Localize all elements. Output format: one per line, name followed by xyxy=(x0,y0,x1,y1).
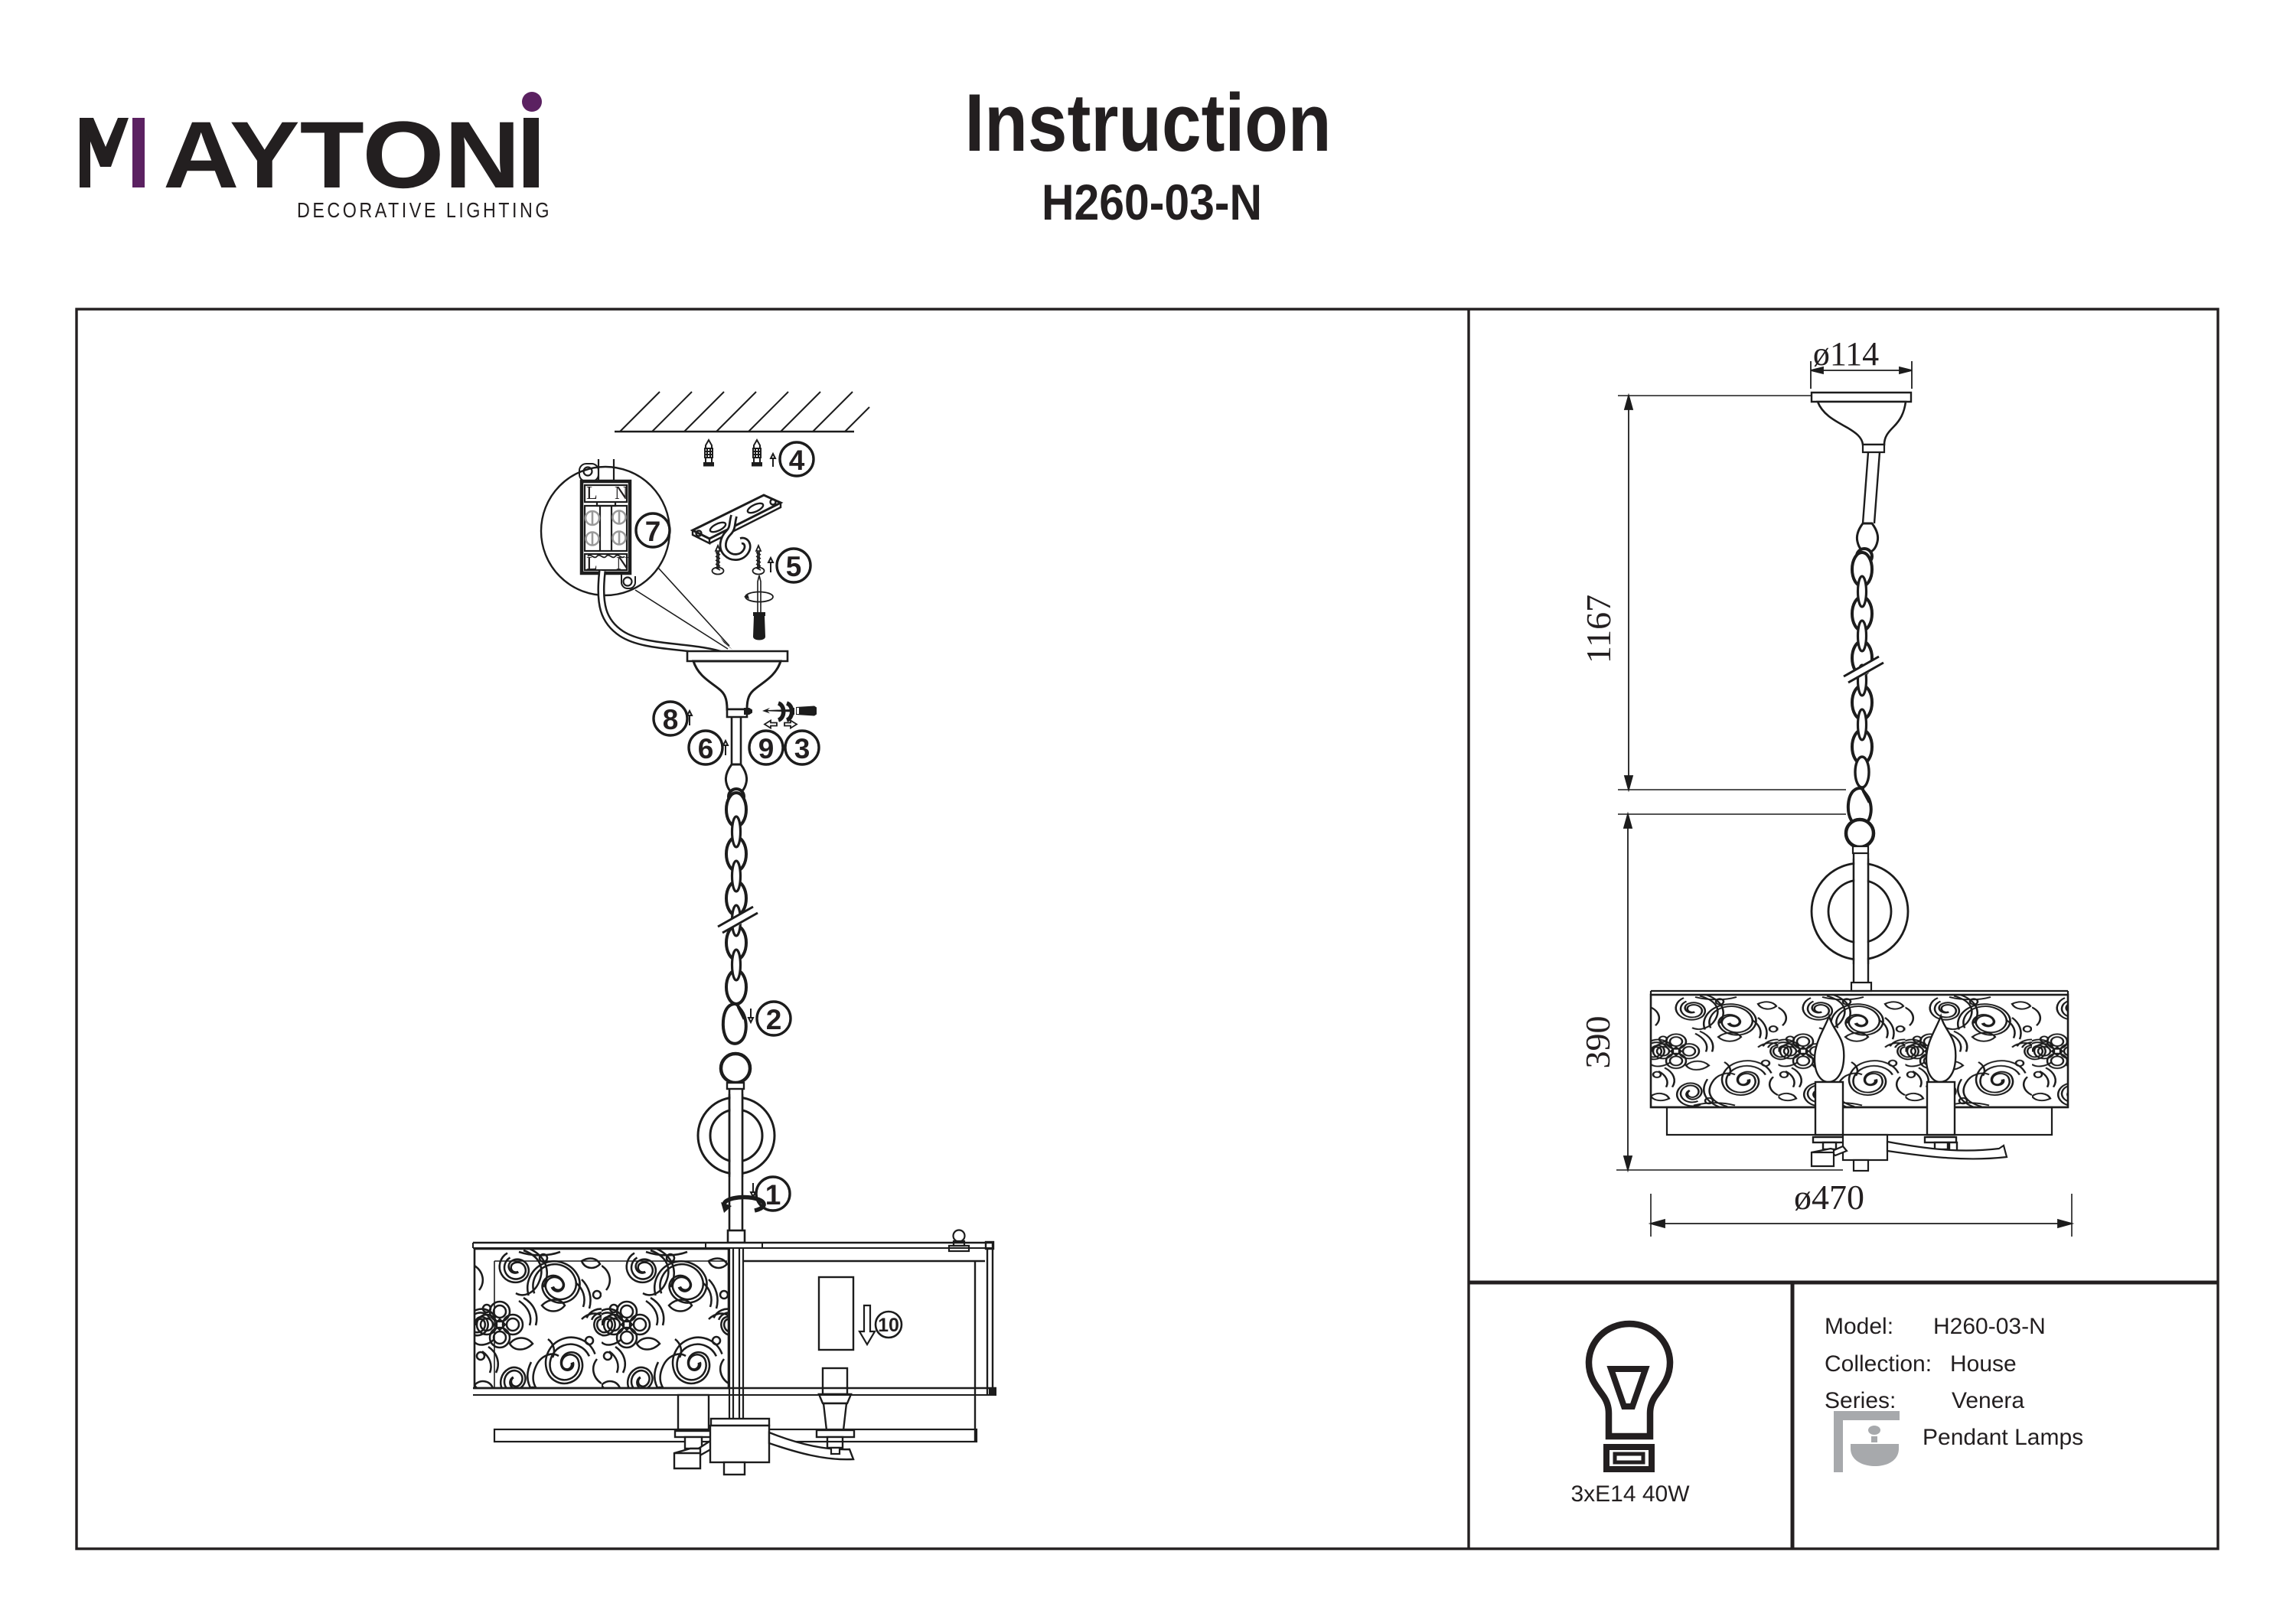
svg-text:8: 8 xyxy=(663,704,679,735)
svg-text:9: 9 xyxy=(758,733,775,764)
svg-text:AYTON: AYTON xyxy=(163,103,520,208)
svg-text:Venera: Venera xyxy=(1952,1388,2024,1413)
svg-text:N: N xyxy=(615,484,628,504)
svg-text:H260-03-N: H260-03-N xyxy=(1042,174,1262,230)
svg-text:390: 390 xyxy=(1578,1016,1617,1069)
svg-text:1167: 1167 xyxy=(1579,595,1618,663)
svg-text:N: N xyxy=(616,554,629,574)
svg-text:5: 5 xyxy=(786,551,802,582)
svg-text:ø470: ø470 xyxy=(1794,1178,1864,1217)
svg-text:4: 4 xyxy=(789,445,805,476)
svg-text:Series:: Series: xyxy=(1825,1388,1896,1413)
svg-text:3: 3 xyxy=(794,733,810,764)
svg-text:DECORATIVE LIGHTING: DECORATIVE LIGHTING xyxy=(297,198,552,222)
svg-text:1: 1 xyxy=(765,1179,781,1211)
svg-text:2: 2 xyxy=(766,1004,782,1035)
svg-text:Collection:: Collection: xyxy=(1825,1351,1932,1377)
svg-text:H260-03-N: H260-03-N xyxy=(1933,1314,2046,1339)
svg-text:3xE14 40W: 3xE14 40W xyxy=(1570,1481,1690,1507)
svg-text:7: 7 xyxy=(645,516,661,547)
svg-text:Pendant Lamps: Pendant Lamps xyxy=(1923,1425,2083,1450)
svg-text:6: 6 xyxy=(698,733,714,764)
svg-text:10: 10 xyxy=(878,1315,899,1336)
svg-text:Instruction: Instruction xyxy=(965,77,1332,168)
svg-text:L: L xyxy=(586,554,598,574)
svg-text:House: House xyxy=(1950,1351,2017,1377)
svg-text:Model:: Model: xyxy=(1825,1314,1893,1339)
svg-text:L: L xyxy=(586,484,598,504)
